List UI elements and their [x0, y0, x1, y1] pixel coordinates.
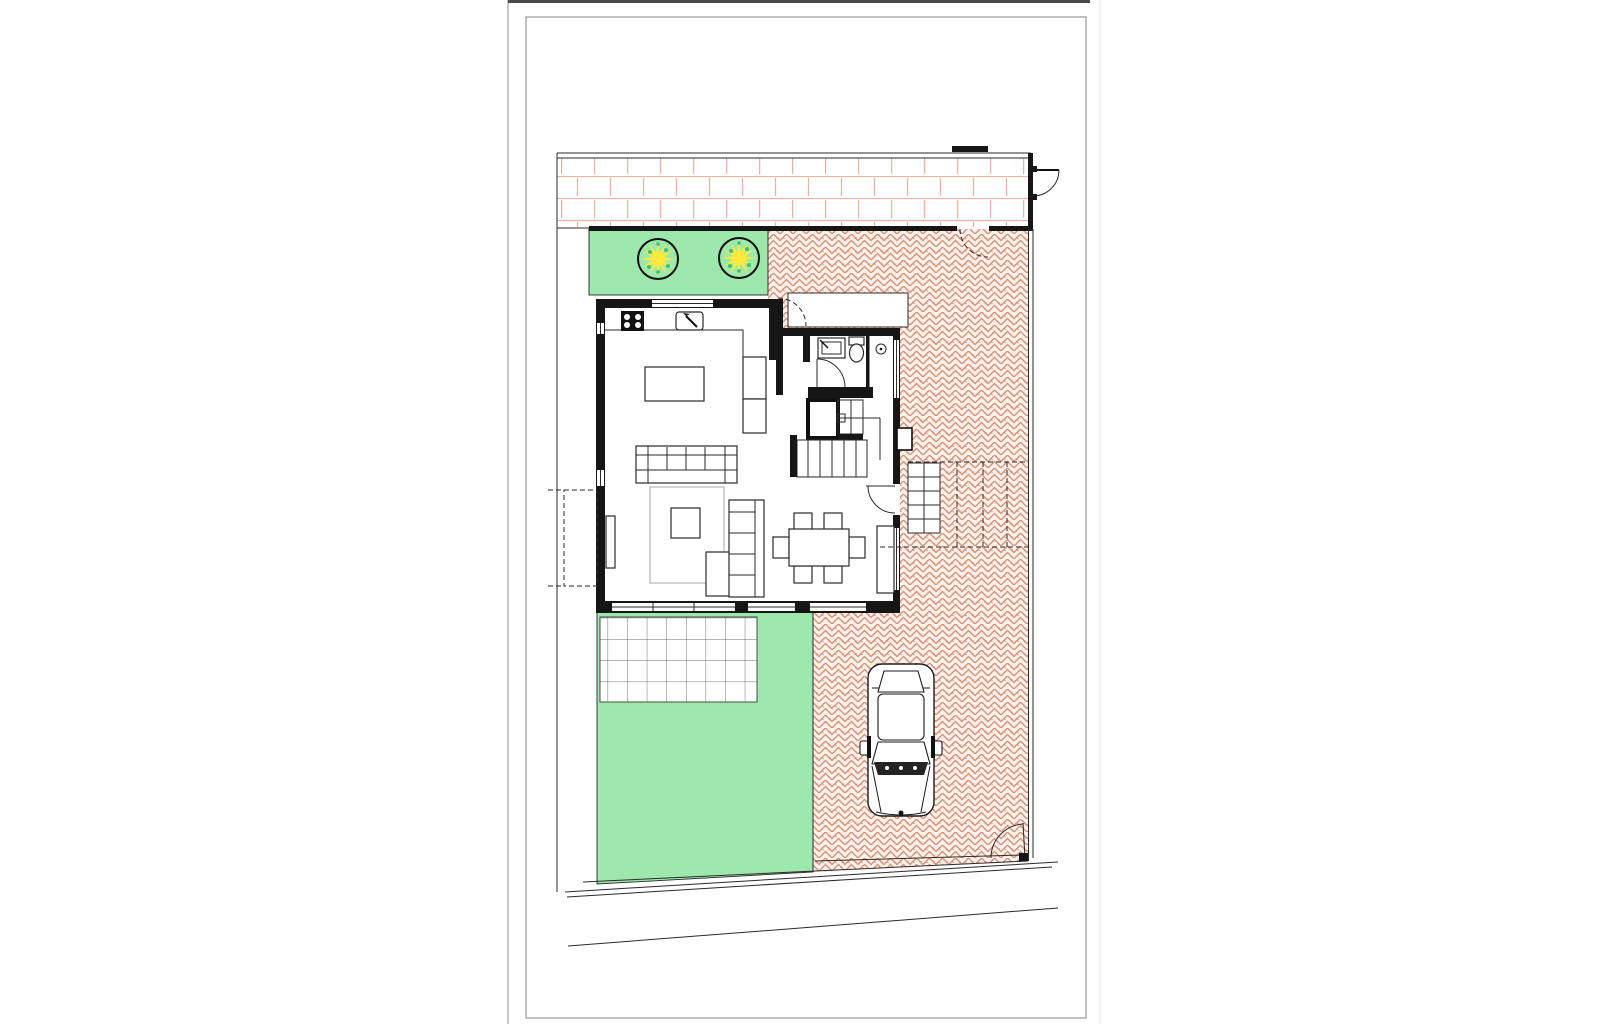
kitchen-sink-icon	[676, 312, 703, 330]
kitchen-stove-icon	[621, 311, 644, 331]
meter-box	[897, 428, 912, 450]
bathroom-sink-icon	[818, 338, 845, 358]
tree-icon	[719, 238, 759, 278]
entrance-canopy	[788, 293, 908, 327]
tree-icon	[638, 239, 678, 279]
radiator	[606, 516, 615, 568]
sidewalk-paving	[557, 158, 1028, 227]
balcony-dashed-outline	[548, 490, 597, 586]
street-curb-line	[568, 908, 1058, 946]
dining-chair	[824, 513, 842, 530]
street-lines	[557, 146, 1031, 158]
dining-chair	[849, 537, 865, 558]
house	[548, 299, 900, 613]
entry-steps	[908, 463, 940, 533]
dining-chair	[794, 513, 812, 530]
kitchen-island	[645, 367, 704, 401]
dining-chair	[794, 566, 812, 583]
dining-table	[789, 529, 849, 566]
chaise-sofa	[729, 500, 764, 597]
sofa	[636, 446, 737, 483]
car-icon	[860, 664, 942, 816]
coffee-table	[671, 508, 700, 538]
toilet-icon	[849, 337, 864, 362]
sideboard	[877, 526, 894, 593]
dining-chair	[773, 537, 789, 558]
dining-chair	[824, 566, 842, 583]
sheet	[0, 0, 1600, 1024]
terrace-grid	[600, 617, 757, 702]
